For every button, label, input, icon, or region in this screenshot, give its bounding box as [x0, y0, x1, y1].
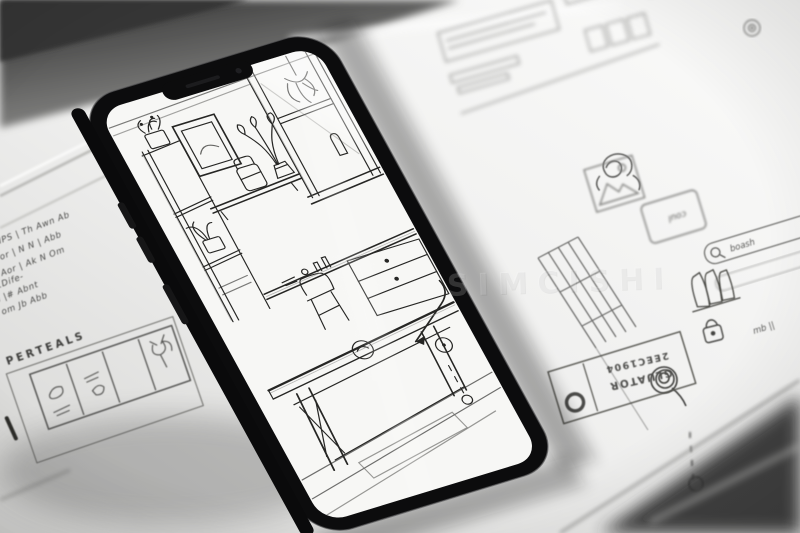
vignette — [0, 0, 800, 533]
photo-stage: coul boash mb || — [0, 0, 800, 533]
photo: coul boash mb || — [0, 0, 800, 533]
